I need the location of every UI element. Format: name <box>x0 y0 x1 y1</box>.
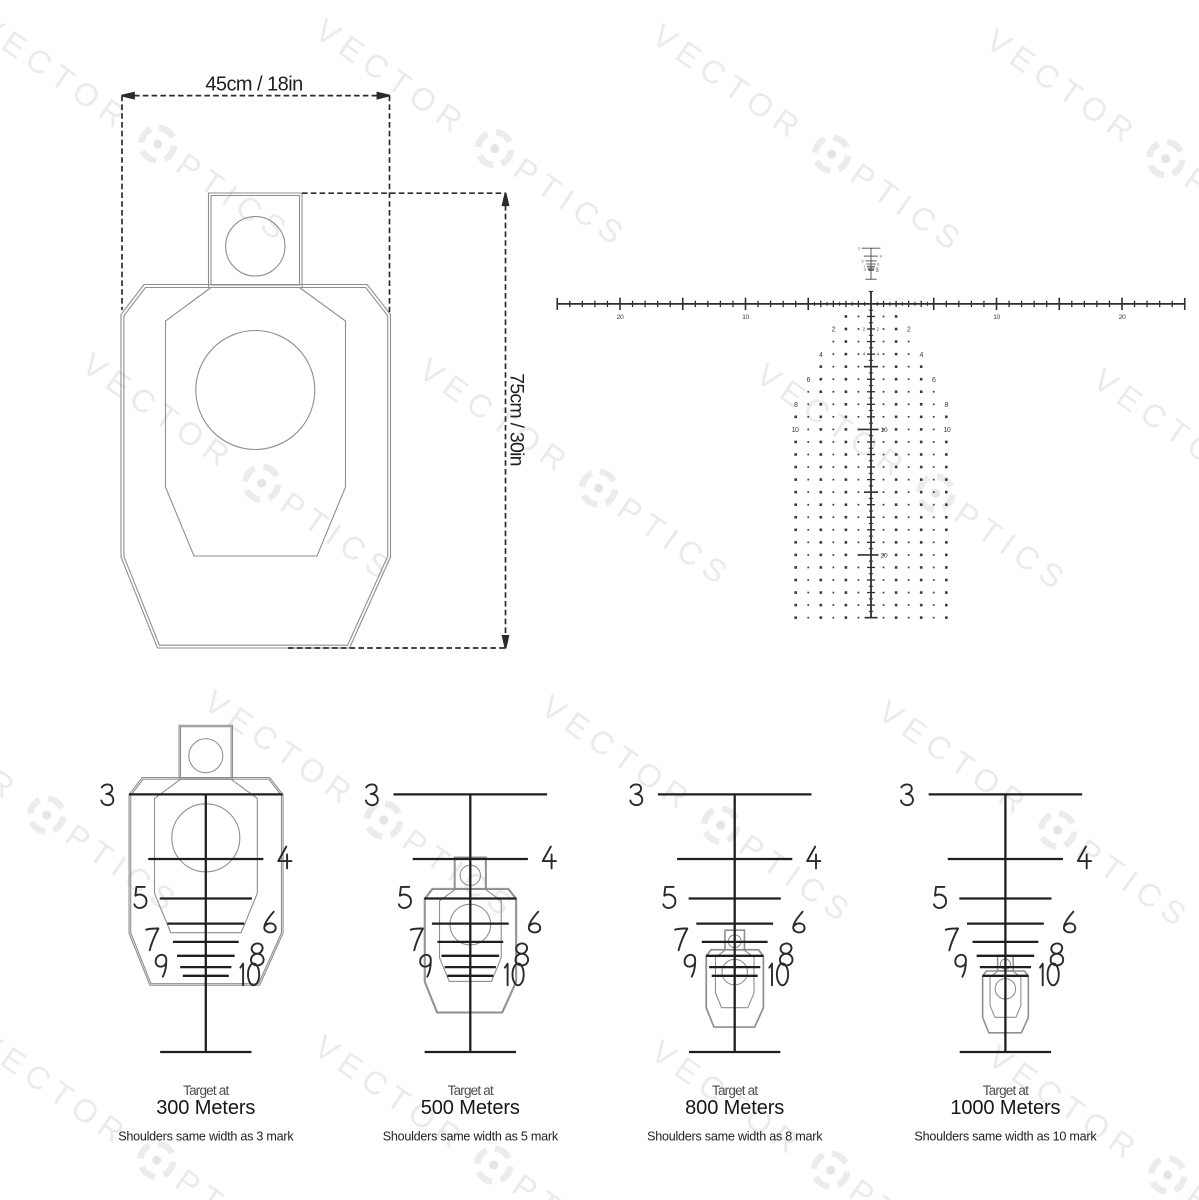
svg-text:4: 4 <box>880 255 882 259</box>
svg-text:Target at: Target at <box>983 1083 1029 1098</box>
svg-text:20: 20 <box>881 553 888 560</box>
svg-text:6: 6 <box>932 377 936 384</box>
svg-text:500 Meters: 500 Meters <box>421 1097 520 1119</box>
svg-text:2: 2 <box>907 327 911 334</box>
svg-text:Shoulders same width as 8 mark: Shoulders same width as 8 mark <box>647 1130 823 1144</box>
svg-text:800 Meters: 800 Meters <box>685 1097 784 1119</box>
svg-text:10: 10 <box>943 427 950 434</box>
svg-text:20: 20 <box>1119 314 1126 321</box>
svg-text:Shoulders same width as 3 mark: Shoulders same width as 3 mark <box>118 1130 294 1144</box>
svg-text:10: 10 <box>742 314 749 321</box>
svg-text:Shoulders same width as 5 mark: Shoulders same width as 5 mark <box>383 1130 559 1144</box>
svg-text:8: 8 <box>945 402 949 409</box>
svg-text:10: 10 <box>993 314 1000 321</box>
svg-text:75cm / 30in: 75cm / 30in <box>506 373 528 466</box>
svg-text:Target at: Target at <box>712 1083 758 1098</box>
svg-text:6: 6 <box>807 377 811 384</box>
svg-text:4: 4 <box>919 352 923 359</box>
svg-text:8: 8 <box>794 402 798 409</box>
svg-text:10: 10 <box>881 427 888 434</box>
svg-text:9: 9 <box>864 268 866 272</box>
svg-text:Target at: Target at <box>448 1083 494 1098</box>
svg-text:3: 3 <box>858 247 860 251</box>
svg-text:300 Meters: 300 Meters <box>156 1097 255 1119</box>
svg-text:1000 Meters: 1000 Meters <box>950 1097 1060 1119</box>
svg-text:10: 10 <box>875 269 879 273</box>
svg-text:45cm / 18in: 45cm / 18in <box>205 74 302 96</box>
svg-text:20: 20 <box>617 314 624 321</box>
svg-text:4: 4 <box>819 352 823 359</box>
svg-text:Shoulders same width as 10 mar: Shoulders same width as 10 mark <box>914 1130 1097 1144</box>
svg-text:5: 5 <box>862 259 864 263</box>
svg-text:2: 2 <box>832 327 836 334</box>
svg-text:Target at: Target at <box>183 1083 229 1098</box>
svg-text:10: 10 <box>792 427 799 434</box>
